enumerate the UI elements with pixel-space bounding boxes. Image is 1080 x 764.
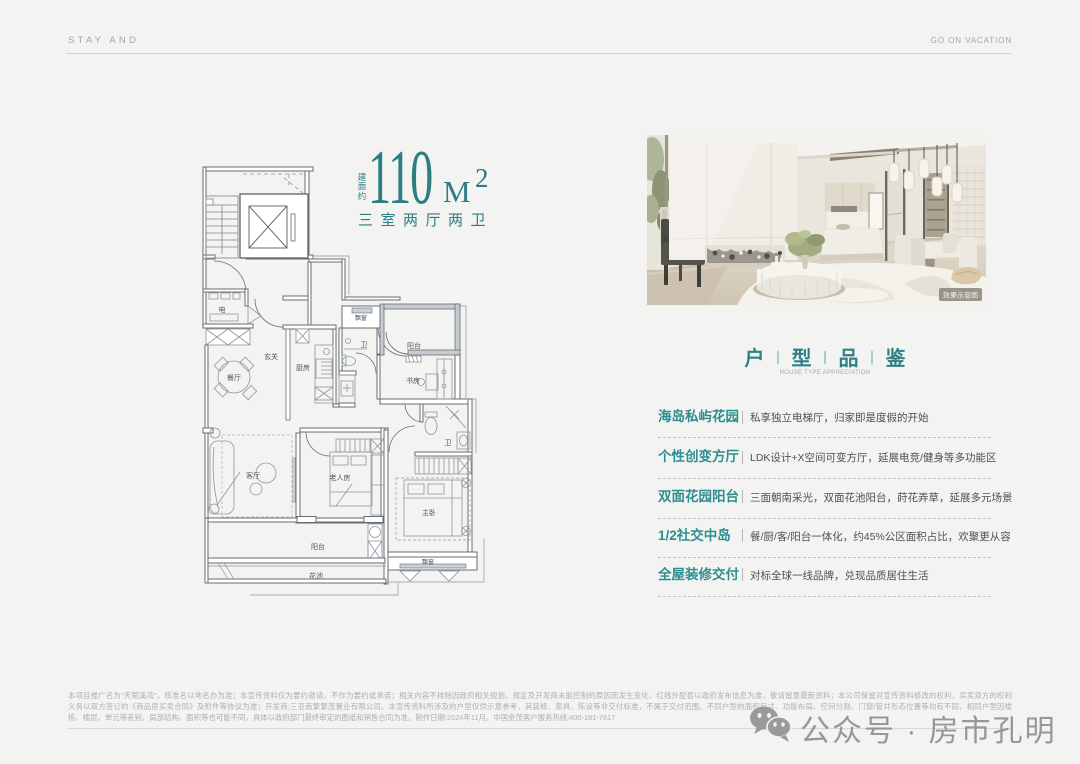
svg-text:电: 电 (219, 305, 226, 314)
svg-text:飘窗: 飘窗 (355, 314, 367, 322)
svg-text:卫: 卫 (445, 439, 452, 447)
svg-text:M: M (443, 174, 471, 209)
svg-text:阳台: 阳台 (311, 542, 325, 551)
svg-text:卫: 卫 (361, 341, 368, 349)
svg-text:老人房: 老人房 (330, 473, 351, 482)
svg-text:飘窗: 飘窗 (422, 558, 434, 566)
svg-text:餐厅: 餐厅 (227, 373, 241, 382)
svg-text:阳台: 阳台 (407, 341, 421, 350)
svg-text:玄关: 玄关 (264, 352, 278, 361)
svg-text:书房: 书房 (406, 376, 420, 385)
svg-text:主卧: 主卧 (422, 508, 436, 517)
svg-text:110: 110 (368, 140, 432, 210)
svg-text:2: 2 (475, 163, 489, 193)
svg-text:效果示意图: 效果示意图 (943, 291, 978, 300)
svg-text:客厅: 客厅 (246, 471, 260, 480)
svg-text:厨房: 厨房 (296, 363, 310, 372)
svg-text:花池: 花池 (309, 571, 323, 580)
